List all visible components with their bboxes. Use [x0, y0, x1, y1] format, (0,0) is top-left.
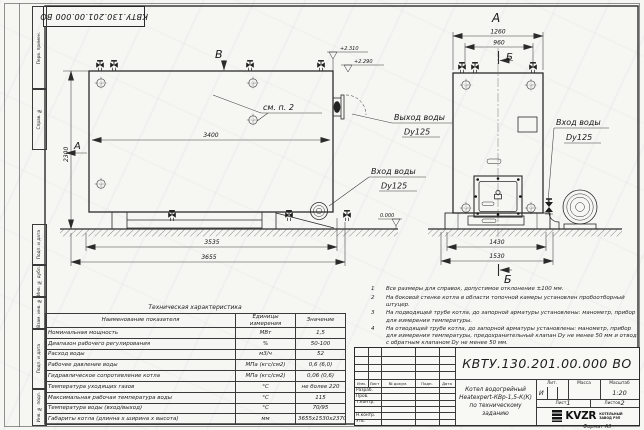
sign-utv: Утв. [356, 419, 381, 425]
lifting-eye-icon [247, 114, 259, 126]
inlet-valve [545, 199, 559, 229]
spec-value: не более 220 [296, 381, 346, 392]
margin-cell-inv-dubl: Инв. № дубл. [32, 264, 47, 298]
view-marker-a: А [73, 141, 81, 152]
spec-value: 0,6 (6,0) [296, 360, 346, 371]
blower-fan [563, 190, 597, 229]
spec-name: Рабочее давление воды [46, 360, 236, 371]
margin-cell-podp-data-1: Подп. и дата [32, 224, 47, 266]
elevation-mark: +2.310 [340, 46, 359, 52]
section-marker-b-top: Б [506, 52, 513, 63]
spec-header-name: Наименование показателя [46, 314, 236, 328]
section-marker-b-bottom: Б [504, 273, 512, 286]
spec-units: МВт [236, 328, 296, 339]
col-list: Лист [368, 379, 381, 387]
see-note-label: см. п. 2 [263, 103, 294, 112]
inlet-label: Вход воды [556, 118, 601, 127]
margin-label: Перв. примен. [37, 32, 42, 64]
spec-name: Расход воды [46, 349, 236, 360]
note-text: На подводящей трубе котла, до запорной а… [386, 310, 637, 324]
lifting-eye-icon [247, 77, 259, 89]
valve-icon [110, 61, 118, 71]
support-leg [112, 212, 127, 229]
kvzr-logo: KVZR КОТЕЛЬНЫЙ ЗАВОД РЭП [536, 407, 639, 425]
spec-units: м3/ч [236, 349, 296, 360]
spec-value: 70/95 [296, 403, 346, 414]
sign-blank [356, 406, 381, 412]
zero-elevation-label: 0.000 [380, 213, 394, 219]
spec-header-row: Наименование показателя Единицы измерени… [46, 314, 346, 328]
spec-value: 1,5 [296, 328, 346, 339]
side-view-labels: В А +2.310 +2.290 см. п. 2 Выход воды Dy… [66, 46, 452, 229]
margin-cell-sprav: Справ. № [32, 88, 47, 150]
note-number: 1 [371, 286, 386, 293]
col-data: Дата [439, 379, 455, 387]
sign-nkontr: Н.контр. [356, 412, 381, 418]
kvzr-flag-icon [552, 410, 562, 422]
outlet-label: Выход воды [394, 113, 445, 122]
lifting-eye-icon [525, 79, 537, 91]
inlet-dn-label: Dy125 [566, 133, 592, 142]
dim-1260: 1260 [490, 29, 505, 36]
mass-label: Масса [568, 379, 600, 387]
drawing-sheet: 3400 2300 3535 3655 В А +2.310 +2.290 [0, 0, 644, 430]
side-view-dimensions: 3400 2300 3535 3655 [63, 71, 345, 266]
front-view-labels: А Б Б Вход воды Dy125 [491, 11, 609, 286]
spec-value: 50-100 [296, 338, 346, 349]
note-item: 1Все размеры для справок, допустимое отк… [371, 286, 637, 293]
lifting-eye-icon [460, 202, 472, 214]
spec-units: °С [236, 392, 296, 403]
ground-hatch [428, 229, 622, 236]
spec-units: мм [236, 414, 296, 425]
spec-units: °С [236, 403, 296, 414]
kvzr-logo-sub2: ЗАВОД РЭП [599, 416, 622, 420]
spec-row: Диапазон рабочего регулирования%50-100 [46, 338, 346, 349]
spec-row: Расход водым3/ч52 [46, 349, 346, 360]
format-note: Формат А3 [583, 424, 611, 430]
product-line: Котел водогрейный [465, 386, 526, 394]
spec-units: МПа (кгс/см2) [236, 360, 296, 371]
lifting-eye-icon [525, 202, 537, 214]
spec-row: Рабочее давление водыМПа (кгс/см2)0,6 (6… [46, 360, 346, 371]
note-number: 2 [371, 295, 386, 309]
spec-name: Габариты котла (длинна х ширина х высота… [46, 414, 236, 425]
margin-label: Подп. и дата [37, 230, 42, 259]
sheet-label: Лист [555, 401, 566, 406]
sheets-cell: Листов 2 [590, 399, 639, 407]
spec-table-title: Техническая характеристика [45, 304, 345, 311]
title-designation: КВТУ.130.201.00.000 ВО [457, 350, 637, 377]
note-text: На боковой стенке котла в области топочн… [386, 295, 637, 309]
margin-cell-perv-primen: Перв. примен. [32, 6, 47, 90]
lifting-eye-icon [95, 178, 107, 190]
spec-name: Максимальная рабочая температура воды [46, 392, 236, 403]
spec-row: Температура воды (вход/выход)°С70/95 [46, 403, 346, 414]
note-text: Все размеры для справок, допустимое откл… [386, 286, 564, 293]
product-name: Котел водогрейный Heatexpert-КВр-1,5-К(К… [456, 380, 535, 424]
lifting-eye-icon [460, 79, 472, 91]
spec-units: °С [236, 381, 296, 392]
spec-row: Максимальная рабочая температура воды°С1… [46, 392, 346, 403]
product-line: по техническому заданию [456, 402, 535, 418]
top-designation-stamp: КВТУ.130.201.00.000 ВО [43, 6, 145, 27]
dim-3400: 3400 [203, 132, 218, 139]
valve-icon [458, 63, 466, 73]
sheets-value: 2 [620, 399, 624, 407]
spec-section: Техническая характеристика Наименование … [45, 304, 345, 425]
sign-razrab: Разраб. [356, 387, 381, 393]
product-line: Heatexpert-КВр-1,5-К(К) [459, 394, 532, 402]
col-podp: Подп. [415, 379, 439, 387]
scale-label: Масштаб [600, 379, 639, 387]
boiler-body-side [89, 71, 333, 212]
spec-name: Температура воды (вход/выход) [46, 403, 236, 414]
spec-row: Температура уходящих газов°Сне более 220 [46, 381, 346, 392]
dim-2300: 2300 [63, 147, 70, 162]
spec-row: Номинальная мощностьМВт1,5 [46, 328, 346, 339]
lit-label: Лит. [536, 379, 568, 387]
spec-units: % [236, 338, 296, 349]
dim-3655: 3655 [201, 254, 216, 261]
margin-label: Подп. и дата [37, 344, 42, 373]
spec-name: Диапазон рабочего регулирования [46, 338, 236, 349]
note-item: 2На боковой стенке котла в области топоч… [371, 295, 637, 309]
inlet-dn-label: Dy125 [381, 182, 407, 191]
margin-label: Инв. № дубл. [37, 266, 42, 296]
spec-header-units: Единицы измерения [236, 314, 296, 328]
notes-block: 1Все размеры для справок, допустимое отк… [371, 286, 637, 349]
spec-units: МПа (кгс/см2) [236, 371, 296, 382]
scale-value: 1:20 [600, 387, 639, 399]
dim-3535: 3535 [204, 239, 219, 246]
drain-valve-icon [343, 211, 351, 221]
lit-value: И [536, 387, 547, 399]
note-text: На отводящей трубе котла, до запорной ар… [386, 326, 637, 347]
sheet-cell: Лист 1 [536, 399, 590, 407]
spec-header-value: Значение [296, 314, 346, 328]
spec-row: Габариты котла (длинна х ширина х высота… [46, 414, 346, 425]
spec-value: 52 [296, 349, 346, 360]
inlet-label: Вход воды [371, 167, 416, 176]
title-block: КВТУ.130.201.00.000 ВО Изм. Лист № докум… [354, 347, 640, 426]
sheets-label: Листов [604, 401, 620, 406]
support-leg [262, 212, 276, 229]
spec-row: Гидравлическое сопротивление котлаМПа (к… [46, 371, 346, 382]
outlet-flange [333, 95, 366, 119]
note-number: 3 [371, 310, 386, 324]
spec-table: Наименование показателя Единицы измерени… [45, 313, 346, 425]
spec-value: 0,06 (0,6) [296, 371, 346, 382]
kvzr-logo-text: KVZR [565, 410, 596, 422]
col-izm: Изм. [355, 379, 368, 387]
note-number: 4 [371, 326, 386, 347]
sheet-value: 1 [566, 399, 570, 407]
sign-tkontr: Т.контр. [356, 400, 381, 406]
elevation-mark: +2.290 [354, 59, 373, 65]
spec-value: 115 [296, 392, 346, 403]
spec-name: Гидравлическое сопротивление котла [46, 371, 236, 382]
note-item: 4На отводящей трубе котла, до запорной а… [371, 326, 637, 347]
outlet-dn-label: Dy125 [404, 128, 430, 137]
note-item: 3На подводящей трубе котла, до запорной … [371, 310, 637, 324]
view-marker-a-top: А [491, 11, 500, 25]
lifting-eye-icon [95, 77, 107, 89]
view-marker-b: В [215, 48, 223, 61]
margin-label: Инв. № подл. [37, 392, 42, 422]
valve-icon [317, 61, 325, 71]
valve-icon [471, 63, 479, 73]
top-designation-text: КВТУ.130.201.00.000 ВО [40, 12, 148, 21]
spec-value: 3655х1530х2370 [296, 414, 346, 425]
valve-icon [246, 61, 254, 71]
inlet-flange [311, 203, 328, 220]
spec-name: Температура уходящих газов [46, 381, 236, 392]
sign-prov: Пров. [356, 393, 381, 399]
margin-label: Взам. инв. № [37, 298, 42, 328]
valve-icon [96, 61, 104, 71]
dim-960: 960 [493, 40, 505, 47]
ground-hatch [60, 229, 398, 236]
dim-1530: 1530 [489, 253, 504, 260]
inspection-hatch [518, 117, 537, 132]
col-dokum: № докум. [381, 379, 415, 387]
spec-name: Номинальная мощность [46, 328, 236, 339]
dim-1430: 1430 [489, 239, 504, 246]
margin-label: Справ. № [37, 108, 42, 129]
side-view [60, 61, 398, 237]
